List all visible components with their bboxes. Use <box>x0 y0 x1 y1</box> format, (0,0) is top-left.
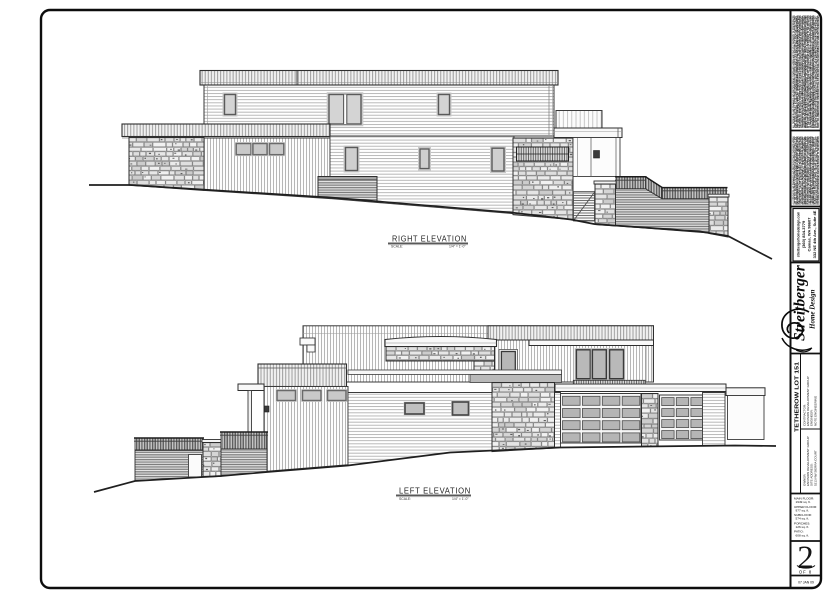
svg-text:1/4" = 1'-0": 1/4" = 1'-0" <box>449 245 466 249</box>
svg-text:07 JAN 09: 07 JAN 09 <box>798 581 814 585</box>
svg-text:608 sq. ft.: 608 sq. ft. <box>796 533 810 537</box>
svg-text:1949 sq. ft.: 1949 sq. ft. <box>796 500 811 504</box>
svg-text:Camas, WA 98607: Camas, WA 98607 <box>807 217 812 252</box>
svg-text:OF 8: OF 8 <box>799 570 812 575</box>
svg-text:1/4" = 1'-0": 1/4" = 1'-0" <box>452 497 469 501</box>
svg-text:SCALE:: SCALE: <box>391 245 403 249</box>
svg-text:SCALE:: SCALE: <box>399 497 411 501</box>
svg-text:Home Design: Home Design <box>809 289 817 330</box>
svg-text:FOR SAME ANY DISCREPANCIES SHA: FOR SAME ANY DISCREPANCIES SHALL BE BROU… <box>816 136 820 204</box>
svg-text:VERIFY ALL DIMENSIONS AND COND: VERIFY ALL DIMENSIONS AND CONDITIONS AT … <box>816 15 820 128</box>
svg-text:574 sq. ft.: 574 sq. ft. <box>796 517 810 521</box>
svg-text:(360) 834-3779: (360) 834-3779 <box>801 220 806 248</box>
svg-text:126 sq. ft.: 126 sq. ft. <box>796 525 810 529</box>
svg-text:5213 NW SIERRA COURT: 5213 NW SIERRA COURT <box>813 450 817 486</box>
svg-text:LEFT ELEVATION: LEFT ELEVATION <box>399 486 471 496</box>
svg-text:TETHEROW LOT 151: TETHEROW LOT 151 <box>795 362 801 432</box>
svg-text:RIGHT ELEVATION: RIGHT ELEVATION <box>392 234 467 244</box>
svg-text:Streitberger: Streitberger <box>792 264 809 341</box>
svg-text:streibergerhomedesign.com: streibergerhomedesign.com <box>796 212 800 258</box>
svg-text:977 sq. ft.: 977 sq. ft. <box>796 508 810 512</box>
svg-text:332 NE 4th Ave., Suite 4E: 332 NE 4th Ave., Suite 4E <box>812 210 817 258</box>
svg-text:NOTE ENGINEERING: NOTE ENGINEERING <box>813 395 817 426</box>
